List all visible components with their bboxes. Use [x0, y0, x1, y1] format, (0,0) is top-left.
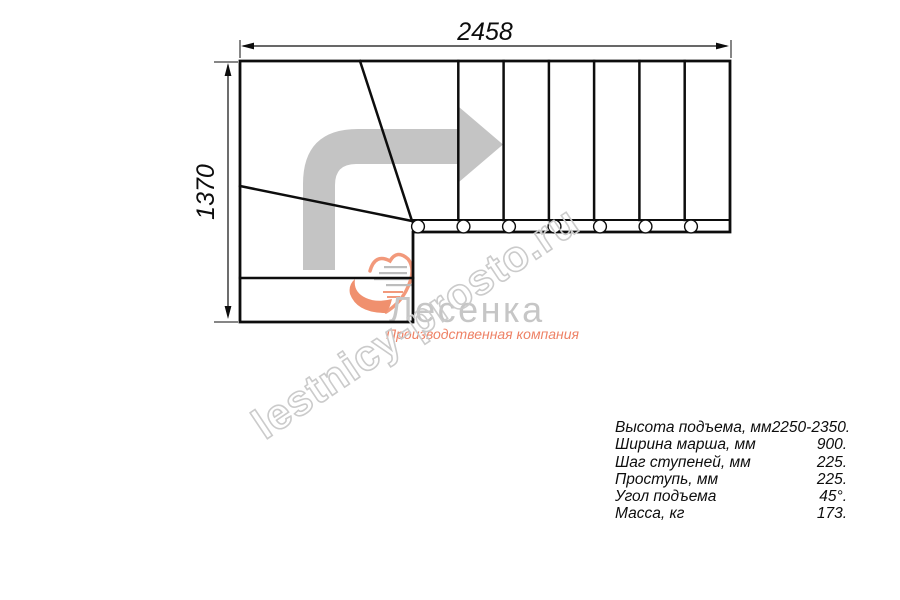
- spec-label: Угол подъема: [615, 488, 716, 505]
- direction-arrow: [303, 107, 503, 270]
- spec-value: 900.: [817, 436, 847, 453]
- stair-plan-page: Лесенка Производственная компания: [0, 0, 900, 600]
- specs-table: Высота подъема, мм 2250-2350. Ширина мар…: [615, 419, 847, 523]
- dimension-width-label: 2458: [456, 18, 513, 46]
- logo-mark: Лесенка Производственная компания: [350, 254, 580, 342]
- direction-arrow-shape: [303, 107, 503, 270]
- spec-row-step: Шаг ступеней, мм 225.: [615, 454, 847, 471]
- spec-label: Ширина марша, мм: [615, 436, 756, 453]
- spec-value: 2250-2350.: [772, 419, 850, 436]
- dim-arrow-down-icon: [225, 306, 232, 319]
- spec-row-height: Высота подъема, мм 2250-2350.: [615, 419, 847, 436]
- spec-value: 173.: [817, 505, 847, 522]
- spec-value: 225.: [817, 471, 847, 488]
- spec-row-tread: Проступь, мм 225.: [615, 471, 847, 488]
- spec-value: 45°.: [819, 488, 847, 505]
- spec-label: Масса, кг: [615, 505, 684, 522]
- logo-swoosh-bottom-icon: [350, 279, 392, 313]
- dimension-width: 2458: [240, 18, 731, 58]
- dim-arrow-right-icon: [716, 43, 729, 50]
- dimension-height-label: 1370: [192, 164, 220, 220]
- spec-label: Проступь, мм: [615, 471, 718, 488]
- dimension-height: 1370: [192, 62, 238, 322]
- spec-label: Высота подъема, мм: [615, 419, 772, 436]
- spec-value: 225.: [817, 454, 847, 471]
- spec-row-mass: Масса, кг 173.: [615, 505, 847, 522]
- dim-arrow-up-icon: [225, 63, 232, 76]
- spec-row-width: Ширина марша, мм 900.: [615, 436, 847, 453]
- logo-subtitle: Производственная компания: [386, 326, 580, 342]
- spec-row-angle: Угол подъема 45°.: [615, 488, 847, 505]
- spec-label: Шаг ступеней, мм: [615, 454, 751, 471]
- dim-arrow-left-icon: [241, 43, 254, 50]
